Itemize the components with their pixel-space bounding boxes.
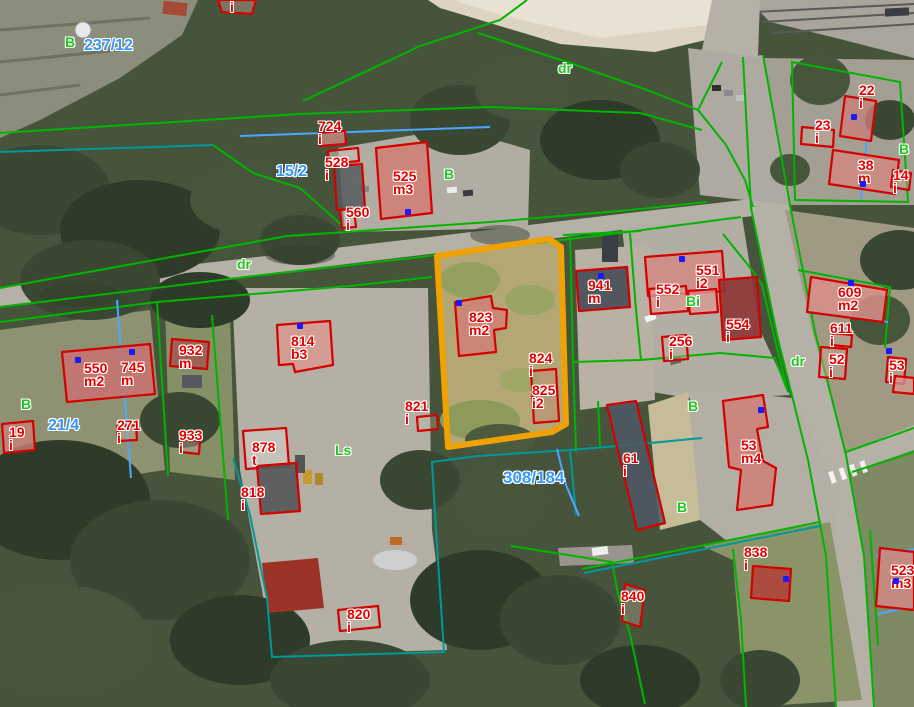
building-840	[622, 584, 645, 627]
building-528-shed	[328, 148, 359, 164]
building-23	[801, 127, 834, 147]
building-top-partial	[218, 0, 256, 14]
building-724	[319, 131, 346, 146]
building-932	[170, 339, 209, 369]
building-820	[338, 606, 380, 631]
building-824	[531, 369, 557, 389]
building-838	[751, 566, 791, 601]
building-52	[819, 347, 847, 379]
building-552	[649, 286, 688, 314]
building-933	[180, 439, 200, 454]
building-550-745	[62, 344, 155, 402]
building-bi	[688, 289, 718, 314]
building-523	[876, 548, 914, 610]
building-814	[277, 321, 333, 372]
building-271	[117, 425, 137, 441]
building-611	[832, 333, 852, 347]
building-825	[532, 387, 559, 423]
building-22	[840, 96, 876, 141]
building-256	[662, 335, 688, 361]
map-canvas[interactable]: i724i528i525m3560i823m2824i825i2941m551i…	[0, 0, 914, 707]
building-right-partial	[893, 376, 914, 394]
building-554	[719, 277, 761, 340]
building-818	[257, 463, 300, 514]
building-19	[2, 421, 35, 453]
building-821	[417, 415, 438, 431]
building-878	[243, 428, 289, 469]
building-528	[334, 164, 365, 210]
map-graphics	[0, 0, 914, 707]
building-525	[376, 142, 432, 219]
building-14	[891, 170, 911, 190]
building-560	[340, 209, 356, 228]
building-941	[576, 267, 630, 311]
